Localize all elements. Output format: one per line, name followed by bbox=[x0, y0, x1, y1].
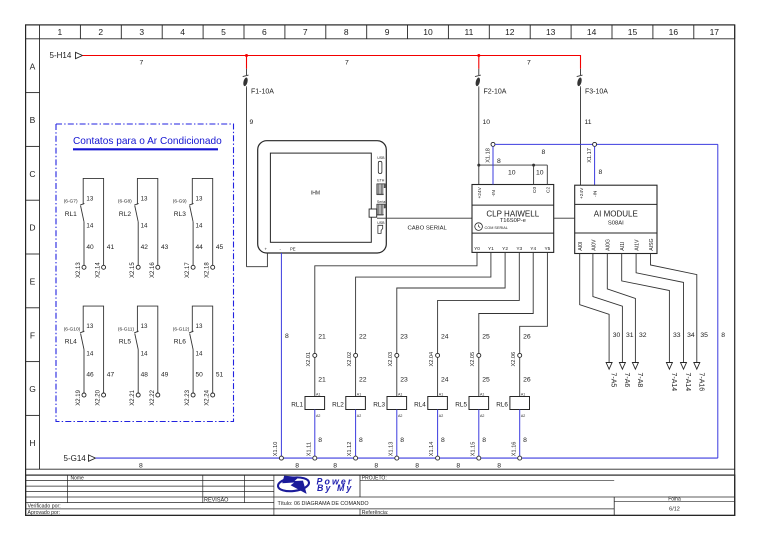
svg-text:44: 44 bbox=[196, 244, 204, 251]
svg-text:D: D bbox=[29, 223, 35, 233]
svg-text:X2.21: X2.21 bbox=[130, 389, 136, 405]
svg-text:F3-10A: F3-10A bbox=[585, 89, 608, 96]
svg-text:Y4: Y4 bbox=[530, 246, 536, 252]
svg-text:AI0V: AI0V bbox=[591, 239, 597, 251]
svg-text:23: 23 bbox=[400, 376, 408, 383]
svg-text:RL3: RL3 bbox=[174, 211, 186, 218]
svg-text:9: 9 bbox=[250, 119, 254, 126]
svg-text:22: 22 bbox=[359, 334, 367, 341]
svg-text:A1: A1 bbox=[521, 392, 525, 396]
svg-text:X1.16: X1.16 bbox=[511, 442, 517, 457]
svg-text:48: 48 bbox=[141, 372, 149, 379]
svg-text:22: 22 bbox=[359, 376, 367, 383]
svg-text:Serial: Serial bbox=[377, 200, 386, 204]
svg-text:X1.13: X1.13 bbox=[388, 442, 394, 457]
svg-text:T16S0P-e: T16S0P-e bbox=[500, 218, 526, 224]
svg-text:4: 4 bbox=[180, 27, 185, 37]
svg-text:14: 14 bbox=[141, 350, 148, 357]
svg-text:6: 6 bbox=[262, 27, 267, 37]
svg-text:14: 14 bbox=[86, 350, 93, 357]
svg-text:7: 7 bbox=[303, 27, 308, 37]
svg-text:8: 8 bbox=[295, 463, 299, 470]
svg-text:RL5: RL5 bbox=[455, 402, 467, 409]
svg-text:Y1: Y1 bbox=[488, 246, 494, 252]
svg-text:RL5: RL5 bbox=[119, 339, 131, 346]
svg-text:8: 8 bbox=[542, 149, 546, 156]
svg-text:X2.18: X2.18 bbox=[205, 262, 211, 278]
svg-text:E: E bbox=[30, 277, 36, 287]
svg-text:Contatos para o Ar Condicionad: Contatos para o Ar Condicionado bbox=[73, 136, 222, 147]
svg-text:X1.11: X1.11 bbox=[306, 442, 312, 456]
svg-text:AI1I: AI1I bbox=[620, 242, 626, 251]
svg-text:17: 17 bbox=[710, 27, 720, 37]
svg-text:A2: A2 bbox=[316, 414, 320, 418]
svg-text:1: 1 bbox=[58, 27, 63, 37]
svg-text:X1.18: X1.18 bbox=[485, 148, 491, 163]
svg-text:7-A16: 7-A16 bbox=[697, 373, 704, 392]
svg-text:8: 8 bbox=[441, 437, 445, 444]
svg-text:X2.20: X2.20 bbox=[96, 389, 102, 405]
svg-text:40: 40 bbox=[86, 244, 94, 251]
svg-text:12: 12 bbox=[505, 27, 515, 37]
svg-text:By My: By My bbox=[317, 483, 353, 493]
svg-text:7-A8: 7-A8 bbox=[636, 373, 643, 388]
svg-text:X2.15: X2.15 bbox=[130, 262, 136, 278]
svg-text:C: C bbox=[29, 169, 35, 179]
svg-text:31: 31 bbox=[626, 332, 634, 339]
svg-text:X2.02: X2.02 bbox=[347, 352, 353, 367]
svg-text:X1.17: X1.17 bbox=[587, 148, 593, 163]
svg-text:X2.24: X2.24 bbox=[205, 389, 211, 405]
svg-text:(6-G10): (6-G10) bbox=[64, 326, 81, 332]
svg-text:G: G bbox=[29, 384, 36, 394]
svg-text:A1: A1 bbox=[480, 392, 484, 396]
svg-text:14: 14 bbox=[196, 350, 203, 357]
svg-text:A2: A2 bbox=[398, 414, 402, 418]
svg-text:46: 46 bbox=[86, 372, 94, 379]
svg-text:8: 8 bbox=[333, 463, 337, 470]
svg-text:CABO SERIAL: CABO SERIAL bbox=[408, 225, 448, 231]
svg-text:7-A5: 7-A5 bbox=[610, 373, 617, 388]
svg-text:AI0I: AI0I bbox=[578, 242, 584, 251]
svg-text:8: 8 bbox=[415, 463, 419, 470]
svg-text:8: 8 bbox=[523, 437, 527, 444]
svg-text:AI MODULE: AI MODULE bbox=[594, 210, 638, 219]
svg-text:13: 13 bbox=[141, 196, 148, 203]
svg-text:8: 8 bbox=[497, 463, 501, 470]
svg-text:5-H14: 5-H14 bbox=[50, 51, 72, 60]
svg-text:B: B bbox=[30, 115, 36, 125]
svg-text:X1.15: X1.15 bbox=[470, 442, 476, 457]
svg-text:H: H bbox=[29, 438, 35, 448]
svg-text:8: 8 bbox=[359, 437, 363, 444]
svg-text:X2.16: X2.16 bbox=[150, 262, 156, 278]
svg-text:Folha: Folha bbox=[668, 497, 681, 503]
svg-text:Nome: Nome bbox=[71, 476, 85, 482]
svg-text:COM SERIAL: COM SERIAL bbox=[485, 226, 508, 230]
svg-text:A2: A2 bbox=[439, 414, 443, 418]
svg-text:21: 21 bbox=[318, 334, 326, 341]
svg-text:X2.19: X2.19 bbox=[76, 389, 82, 405]
svg-text:RL2: RL2 bbox=[332, 402, 344, 409]
svg-text:X2.13: X2.13 bbox=[76, 262, 82, 278]
svg-text:7: 7 bbox=[140, 60, 144, 67]
svg-text:X1.10: X1.10 bbox=[273, 442, 279, 457]
svg-text:Título: 06 DIAGRAMA DE COMANDO: Título: 06 DIAGRAMA DE COMANDO bbox=[278, 501, 369, 507]
svg-text:6/12: 6/12 bbox=[669, 507, 680, 513]
svg-text:10: 10 bbox=[423, 27, 433, 37]
svg-text:35: 35 bbox=[700, 332, 708, 339]
svg-text:2: 2 bbox=[98, 27, 103, 37]
svg-text:13: 13 bbox=[196, 196, 203, 203]
svg-text:A2: A2 bbox=[357, 414, 361, 418]
svg-text:(6-G8): (6-G8) bbox=[118, 199, 132, 205]
svg-text:X2.03: X2.03 bbox=[388, 352, 394, 367]
svg-text:(6-G11): (6-G11) bbox=[118, 326, 135, 332]
svg-text:7: 7 bbox=[345, 60, 349, 67]
svg-text:A1: A1 bbox=[316, 392, 320, 396]
svg-text:X2.05: X2.05 bbox=[470, 352, 476, 367]
svg-text:7-A14: 7-A14 bbox=[670, 373, 677, 392]
svg-text:15: 15 bbox=[628, 27, 638, 37]
svg-text:X2.04: X2.04 bbox=[429, 352, 435, 367]
svg-text:-IN: -IN bbox=[593, 190, 599, 197]
svg-text:A1: A1 bbox=[357, 392, 361, 396]
svg-text:41: 41 bbox=[107, 244, 115, 251]
svg-text:AISG: AISG bbox=[649, 238, 655, 250]
svg-text:8: 8 bbox=[599, 169, 603, 176]
svg-text:X2.17: X2.17 bbox=[185, 262, 191, 278]
svg-text:Y3: Y3 bbox=[516, 246, 522, 252]
svg-text:49: 49 bbox=[161, 372, 169, 379]
svg-text:11: 11 bbox=[585, 119, 592, 126]
svg-text:X2.23: X2.23 bbox=[185, 389, 191, 405]
svg-text:8: 8 bbox=[497, 158, 501, 165]
svg-text:8: 8 bbox=[374, 463, 378, 470]
svg-text:16: 16 bbox=[669, 27, 679, 37]
svg-text:X2.01: X2.01 bbox=[306, 352, 312, 367]
svg-text:23: 23 bbox=[400, 334, 408, 341]
svg-text:14: 14 bbox=[141, 223, 148, 230]
svg-text:IHM: IHM bbox=[311, 191, 320, 197]
svg-text:8: 8 bbox=[400, 437, 404, 444]
svg-text:26: 26 bbox=[523, 376, 531, 383]
svg-text:AI1V: AI1V bbox=[635, 239, 641, 251]
svg-text:8: 8 bbox=[318, 437, 322, 444]
svg-text:32: 32 bbox=[639, 332, 647, 339]
svg-text:RL6: RL6 bbox=[496, 402, 508, 409]
svg-text:9: 9 bbox=[385, 27, 390, 37]
svg-text:3: 3 bbox=[139, 27, 144, 37]
svg-text:X2.06: X2.06 bbox=[511, 352, 517, 367]
svg-text:51: 51 bbox=[216, 372, 224, 379]
svg-text:ETH: ETH bbox=[377, 179, 385, 183]
svg-text:11: 11 bbox=[464, 27, 473, 37]
svg-text:50: 50 bbox=[196, 372, 204, 379]
svg-text:5: 5 bbox=[221, 27, 226, 37]
svg-text:X2.22: X2.22 bbox=[150, 389, 156, 405]
svg-text:RL4: RL4 bbox=[414, 402, 426, 409]
svg-text:14: 14 bbox=[86, 223, 93, 230]
svg-text:F: F bbox=[30, 330, 35, 340]
svg-text:Y0: Y0 bbox=[474, 246, 480, 252]
svg-text:X1.14: X1.14 bbox=[429, 442, 435, 457]
svg-text:USB: USB bbox=[377, 156, 385, 160]
svg-text:S08AI: S08AI bbox=[608, 220, 624, 226]
svg-text:33: 33 bbox=[673, 332, 681, 339]
svg-text:C0: C0 bbox=[532, 187, 538, 193]
svg-text:25: 25 bbox=[482, 334, 490, 341]
svg-text:45: 45 bbox=[216, 244, 224, 251]
svg-text:13: 13 bbox=[196, 323, 203, 330]
svg-text:42: 42 bbox=[141, 244, 149, 251]
svg-text:Verificado por:: Verificado por: bbox=[28, 503, 61, 509]
svg-text:8: 8 bbox=[139, 463, 143, 470]
svg-text:13: 13 bbox=[86, 323, 93, 330]
svg-text:7-A6: 7-A6 bbox=[623, 373, 630, 388]
svg-text:X2.14: X2.14 bbox=[96, 262, 102, 278]
svg-text:RL4: RL4 bbox=[65, 339, 77, 346]
svg-text:Aprovado por:: Aprovado por: bbox=[28, 510, 61, 516]
svg-text:(6-G9): (6-G9) bbox=[173, 199, 187, 205]
svg-text:PROJETO:: PROJETO: bbox=[362, 476, 387, 482]
svg-text:34: 34 bbox=[687, 332, 695, 339]
svg-text:26: 26 bbox=[523, 334, 531, 341]
svg-text:AI0G: AI0G bbox=[606, 239, 612, 251]
svg-text:A1: A1 bbox=[398, 392, 402, 396]
svg-text:+24V: +24V bbox=[579, 187, 585, 199]
svg-text:Y2: Y2 bbox=[502, 246, 508, 252]
svg-text:13: 13 bbox=[546, 27, 556, 37]
svg-text:(6-G12): (6-G12) bbox=[173, 326, 190, 332]
svg-text:10: 10 bbox=[483, 119, 491, 126]
svg-text:F2-10A: F2-10A bbox=[484, 89, 507, 96]
svg-text:Y5: Y5 bbox=[544, 246, 550, 252]
svg-text:8: 8 bbox=[456, 463, 460, 470]
svg-text:RL6: RL6 bbox=[174, 339, 186, 346]
svg-text:43: 43 bbox=[161, 244, 169, 251]
svg-text:8: 8 bbox=[721, 332, 725, 339]
svg-text:A2: A2 bbox=[521, 414, 525, 418]
svg-text:5-G14: 5-G14 bbox=[64, 454, 87, 463]
svg-text:21: 21 bbox=[318, 376, 326, 383]
svg-text:Referência:: Referência: bbox=[362, 510, 389, 516]
svg-text:14: 14 bbox=[587, 27, 597, 37]
svg-text:47: 47 bbox=[107, 372, 115, 379]
svg-text:8: 8 bbox=[285, 333, 289, 340]
svg-text:7-A14: 7-A14 bbox=[684, 373, 691, 392]
svg-text:10: 10 bbox=[536, 169, 544, 176]
svg-text:13: 13 bbox=[86, 196, 93, 203]
svg-text:A2: A2 bbox=[480, 414, 484, 418]
svg-text:RL2: RL2 bbox=[119, 211, 131, 218]
svg-text:8: 8 bbox=[482, 437, 486, 444]
svg-text:25: 25 bbox=[482, 376, 490, 383]
svg-text:24: 24 bbox=[441, 376, 449, 383]
svg-text:(6-G7): (6-G7) bbox=[64, 199, 78, 205]
svg-text:24: 24 bbox=[441, 334, 449, 341]
svg-text:RL1: RL1 bbox=[291, 402, 303, 409]
svg-text:14: 14 bbox=[196, 223, 203, 230]
svg-text:A1: A1 bbox=[439, 392, 443, 396]
svg-text:+24V: +24V bbox=[477, 186, 483, 198]
svg-text:USB: USB bbox=[377, 221, 385, 225]
svg-text:A: A bbox=[30, 61, 36, 71]
svg-text:C2: C2 bbox=[546, 187, 552, 193]
svg-text:RL1: RL1 bbox=[65, 211, 77, 218]
svg-text:X1.12: X1.12 bbox=[347, 442, 353, 457]
svg-text:RL3: RL3 bbox=[373, 402, 385, 409]
svg-text:F1-10A: F1-10A bbox=[251, 89, 274, 96]
svg-text:13: 13 bbox=[141, 323, 148, 330]
svg-text:10: 10 bbox=[508, 169, 516, 176]
svg-text:8: 8 bbox=[344, 27, 349, 37]
svg-text:PE: PE bbox=[290, 247, 296, 252]
svg-text:7: 7 bbox=[527, 60, 531, 67]
svg-text:-IN: -IN bbox=[491, 190, 497, 197]
svg-text:30: 30 bbox=[613, 332, 621, 339]
